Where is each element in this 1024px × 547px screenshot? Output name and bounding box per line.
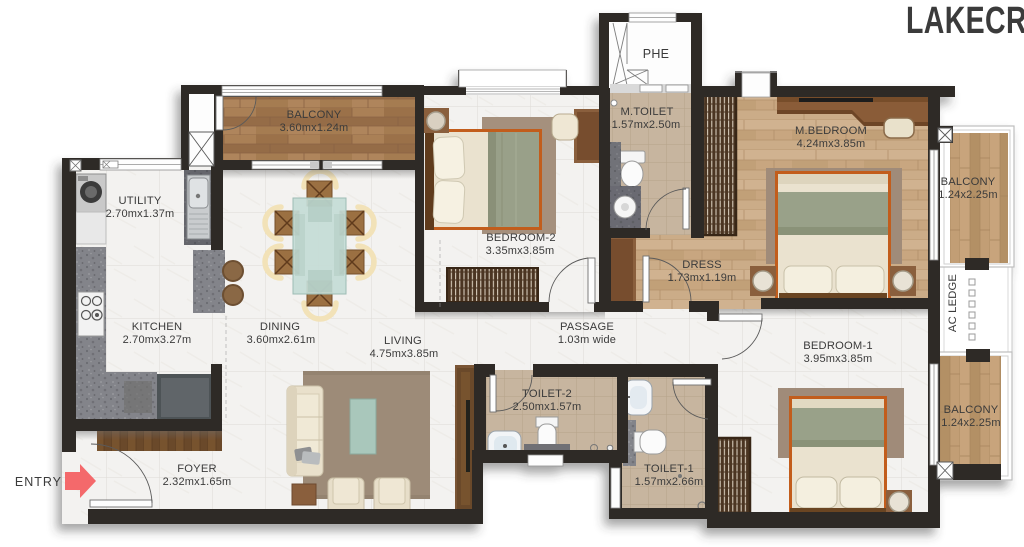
- svg-text:TOILET-1: TOILET-1: [644, 463, 694, 475]
- svg-text:PASSAGE: PASSAGE: [560, 321, 614, 333]
- svg-text:KITCHEN: KITCHEN: [132, 321, 183, 333]
- svg-text:2.50mx1.57m: 2.50mx1.57m: [513, 401, 582, 413]
- svg-text:3.60mx2.61m: 3.60mx2.61m: [247, 334, 316, 346]
- svg-text:3.35mx3.85m: 3.35mx3.85m: [486, 245, 555, 257]
- svg-text:FOYER: FOYER: [177, 463, 217, 475]
- svg-text:4.75mx3.85m: 4.75mx3.85m: [370, 348, 439, 360]
- svg-text:AC LEDGE: AC LEDGE: [947, 274, 959, 332]
- svg-text:1.57mx2.50m: 1.57mx2.50m: [612, 119, 681, 131]
- svg-text:BALCONY: BALCONY: [944, 404, 999, 416]
- svg-text:BEDROOM-1: BEDROOM-1: [803, 340, 873, 352]
- svg-text:1.57mx2.66m: 1.57mx2.66m: [635, 476, 704, 488]
- svg-text:LAKECREST: LAKECREST: [906, 0, 1024, 42]
- svg-text:DINING: DINING: [260, 321, 300, 333]
- svg-text:1.24x2.25m: 1.24x2.25m: [938, 189, 997, 201]
- svg-text:2.70mx3.27m: 2.70mx3.27m: [123, 334, 192, 346]
- svg-text:DRESS: DRESS: [682, 259, 722, 271]
- svg-text:4.24mx3.85m: 4.24mx3.85m: [797, 138, 866, 150]
- svg-text:3.60mx1.24m: 3.60mx1.24m: [280, 122, 349, 134]
- svg-text:UTILITY: UTILITY: [118, 195, 161, 207]
- svg-text:3.95mx3.85m: 3.95mx3.85m: [804, 353, 873, 365]
- svg-text:TOILET-2: TOILET-2: [522, 388, 572, 400]
- svg-text:1.24x2.25m: 1.24x2.25m: [941, 417, 1000, 429]
- svg-text:M.TOILET: M.TOILET: [621, 106, 674, 118]
- svg-text:2.32mx1.65m: 2.32mx1.65m: [163, 476, 232, 488]
- svg-text:M.BEDROOM: M.BEDROOM: [795, 125, 867, 137]
- svg-text:2.70mx1.37m: 2.70mx1.37m: [106, 208, 175, 220]
- svg-text:BALCONY: BALCONY: [941, 176, 996, 188]
- svg-text:PHE: PHE: [643, 47, 670, 61]
- svg-text:BEDROOM-2: BEDROOM-2: [486, 232, 556, 244]
- svg-text:BALCONY: BALCONY: [287, 109, 342, 121]
- svg-text:1.03m wide: 1.03m wide: [558, 334, 616, 346]
- svg-text:1.73mx1.19m: 1.73mx1.19m: [668, 272, 737, 284]
- svg-text:ENTRY: ENTRY: [15, 475, 62, 489]
- svg-text:LIVING: LIVING: [384, 335, 422, 347]
